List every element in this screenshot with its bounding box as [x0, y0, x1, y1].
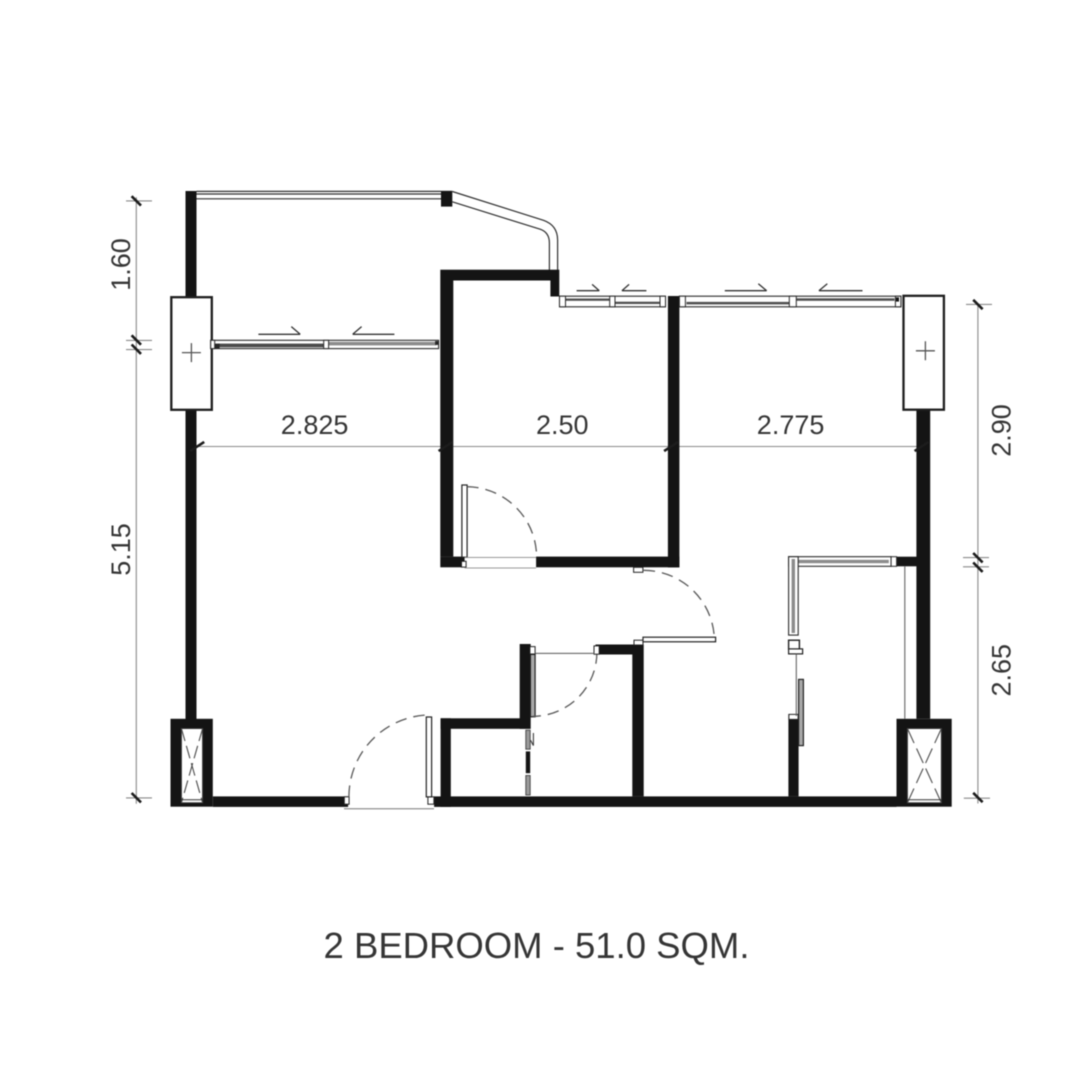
svg-text:5.15: 5.15 — [106, 523, 136, 576]
svg-text:2.775: 2.775 — [757, 410, 825, 440]
svg-text:2.50: 2.50 — [536, 410, 589, 440]
svg-text:2 BEDROOM - 51.0 SQM.: 2 BEDROOM - 51.0 SQM. — [324, 925, 750, 966]
svg-text:1.60: 1.60 — [106, 238, 136, 291]
svg-text:2.65: 2.65 — [987, 644, 1017, 697]
svg-text:2.90: 2.90 — [987, 404, 1017, 457]
svg-text:2.825: 2.825 — [281, 410, 349, 440]
